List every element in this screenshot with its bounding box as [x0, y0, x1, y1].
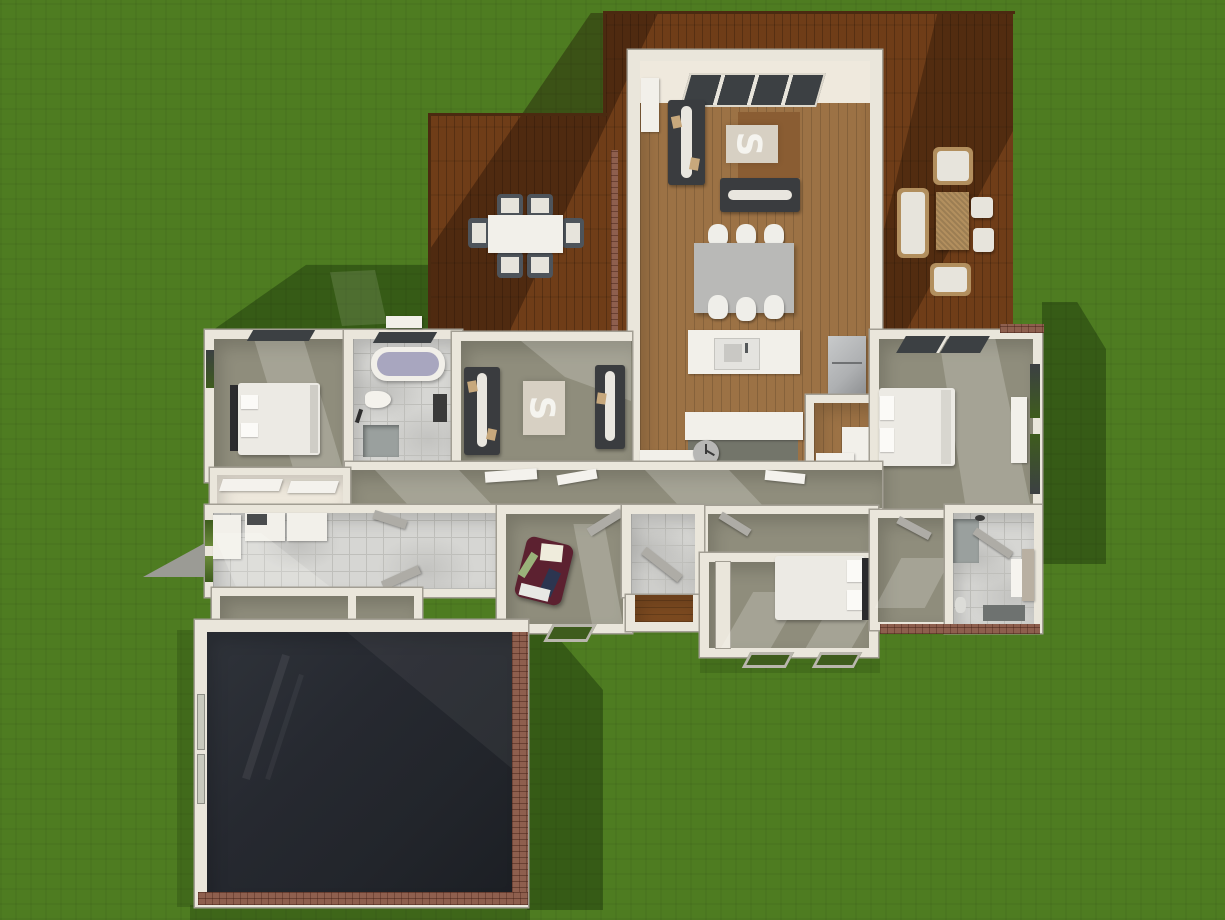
light-patch	[561, 524, 623, 624]
sofa-pillow	[689, 157, 700, 170]
toilet	[365, 391, 391, 408]
brick-strip-living-wall	[611, 150, 618, 332]
open-door-leaf	[381, 565, 421, 589]
window-well	[543, 624, 597, 642]
brick-strip-right-wing	[880, 624, 1040, 634]
bed-pillow	[880, 396, 894, 420]
white-cabinet	[641, 78, 659, 132]
garage-shadow-bottom	[190, 905, 530, 920]
living-loveseat-horizontal	[720, 178, 800, 212]
sofa-pillow	[486, 428, 497, 441]
towel-white	[1011, 559, 1022, 597]
s-motif-glyph: S	[731, 132, 765, 157]
sofa-pillow	[596, 392, 606, 404]
sitting-sofa-right	[595, 365, 625, 449]
deck-edge-left-upper	[603, 11, 606, 117]
deck-edge-left-side	[428, 113, 431, 332]
light-patch	[645, 470, 765, 508]
rooftop-unit	[386, 316, 422, 328]
room-garage	[195, 620, 528, 907]
rug-s-motif: S	[726, 125, 778, 163]
washer-top	[247, 514, 267, 525]
light-patch	[375, 470, 495, 508]
bed-pillow	[847, 560, 862, 582]
s-motif-glyph: S	[524, 396, 558, 421]
room-office	[497, 505, 632, 633]
garage-light-streak	[242, 654, 290, 780]
recliner-green-strip	[518, 552, 539, 578]
clerestory-window	[373, 332, 437, 343]
shower-head	[975, 515, 985, 521]
outdoor-ottoman	[973, 228, 994, 252]
chair-cushion	[531, 198, 549, 213]
sofa-pillow	[467, 380, 478, 392]
clerestory-window	[247, 330, 315, 341]
open-door-leaf	[718, 512, 751, 537]
recliner-maroon	[513, 535, 575, 607]
sink-faucet	[745, 343, 748, 353]
exterior-door-wing	[143, 543, 205, 577]
laundry-left-window	[205, 520, 213, 546]
bed-foot-strip	[310, 385, 318, 453]
room-sitting: S	[452, 332, 632, 472]
chair-cushion	[566, 223, 580, 243]
open-door-leaf	[485, 468, 538, 483]
room-master-bedroom	[870, 330, 1042, 526]
shower-square	[363, 425, 399, 457]
open-door-leaf	[372, 510, 407, 529]
brick-wainscot-garage-right	[512, 632, 528, 894]
room-bedroom-bottom	[700, 553, 878, 657]
bed-foot-strip	[941, 390, 951, 464]
outdoor-dining-table	[488, 215, 563, 253]
mud-divider-wall	[348, 596, 356, 622]
outdoor-chair	[562, 218, 584, 248]
bathtub	[371, 347, 445, 381]
chair-cushion	[501, 257, 519, 273]
front-door-leaf	[641, 547, 683, 582]
brick-wainscot-garage-bottom	[198, 892, 528, 905]
entry-porch	[626, 595, 702, 631]
shower-gray	[953, 519, 979, 563]
chair-cushion	[531, 257, 549, 273]
sitting-sofa-left	[464, 367, 500, 455]
outdoor-sofa	[897, 188, 929, 258]
outdoor-armchair	[930, 263, 971, 296]
master-right-window	[1030, 364, 1040, 418]
laundry-left-window	[205, 556, 213, 582]
master-right-window	[1030, 434, 1040, 494]
room-entry-hall	[622, 505, 704, 597]
light-patch	[875, 558, 952, 608]
dining-chair	[736, 297, 756, 321]
wardrobe	[1011, 397, 1027, 463]
scene-3d-floorplan: S	[0, 0, 1225, 920]
house-shadow-right	[1042, 302, 1106, 564]
dryer	[287, 513, 327, 541]
refrigerator	[828, 336, 866, 394]
bed-pillow	[847, 590, 862, 610]
closet-shelf	[287, 481, 339, 493]
bed-pillow	[880, 428, 894, 452]
outdoor-armchair	[933, 147, 973, 185]
bed-headboard	[230, 385, 238, 451]
rug-s-motif: S	[523, 381, 565, 435]
outdoor-chair	[468, 218, 490, 248]
kitchen-island	[688, 330, 800, 374]
vanity	[1022, 549, 1034, 601]
room-laundry	[205, 505, 505, 597]
window-well	[812, 652, 863, 668]
garage-floor-highlight	[347, 632, 516, 772]
armchair-cushion	[934, 267, 967, 292]
toilet	[955, 597, 966, 613]
dining-chair	[708, 295, 728, 319]
outdoor-chair	[497, 194, 523, 217]
closet-shelf	[219, 479, 283, 491]
outdoor-coffee-table	[936, 192, 969, 250]
bed-double	[238, 383, 320, 455]
room-bathroom-top-left	[344, 330, 462, 482]
room-bedroom-top-left	[205, 330, 353, 482]
clock-hand	[706, 450, 715, 456]
towel-niche	[433, 394, 447, 422]
open-door-leaf	[765, 470, 806, 484]
light-patch	[213, 533, 333, 589]
outdoor-chair	[527, 252, 553, 278]
sink-basin	[724, 344, 742, 362]
outdoor-chair	[527, 194, 553, 217]
living-sofa-vertical	[668, 100, 705, 185]
sofa-throw	[605, 371, 615, 441]
armchair-cushion	[937, 151, 969, 181]
island-sink	[714, 338, 760, 370]
garage-window-slit	[197, 754, 205, 804]
sofa-throw	[728, 190, 792, 200]
house-shadow-lower-center	[527, 628, 603, 910]
bathtub-water	[377, 352, 439, 376]
fridge-handle	[832, 362, 862, 364]
garage-window-slit	[197, 694, 205, 750]
brick-strip-top-right	[1000, 324, 1044, 333]
garage-shadow-left	[177, 630, 195, 907]
bed-headboard	[862, 558, 869, 620]
bed-double	[775, 556, 865, 620]
recliner-pillow	[540, 543, 564, 562]
bed-pillow	[241, 423, 258, 437]
bath-fixture	[355, 409, 363, 424]
open-door-leaf	[556, 469, 597, 486]
bed-double	[879, 388, 955, 466]
bedroom-left-window	[206, 350, 214, 388]
chair-cushion	[472, 223, 486, 243]
deck-edge-top	[603, 11, 1015, 14]
open-door-leaf	[896, 516, 932, 540]
dining-chair	[764, 295, 784, 319]
room-bathroom-bottom-right	[945, 505, 1042, 633]
bed-pillow	[241, 395, 258, 409]
window-well	[742, 652, 795, 668]
floor-mat-dark	[983, 605, 1025, 621]
outdoor-ottoman	[971, 197, 993, 218]
chair-cushion	[501, 198, 519, 213]
outdoor-chair	[497, 252, 523, 278]
kitchen-counter	[685, 412, 803, 440]
sofa-cushion	[901, 192, 925, 254]
deck-edge-left-lower	[428, 113, 608, 116]
